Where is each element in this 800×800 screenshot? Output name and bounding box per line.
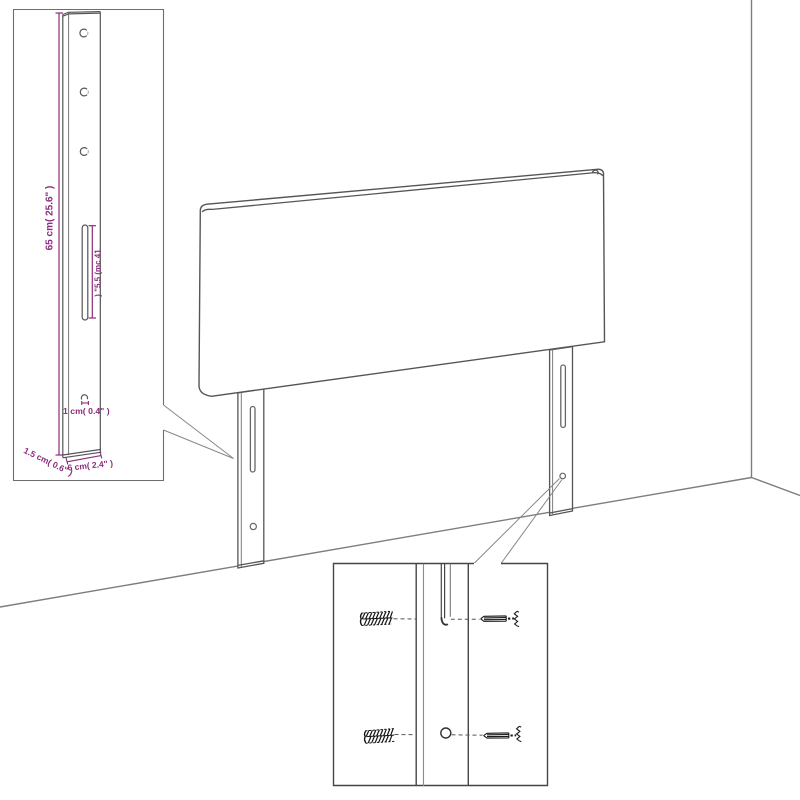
svg-text:65 cm( 25.6" ): 65 cm( 25.6" ) [45,186,56,251]
svg-text:) "5.5 (mc 41: ) "5.5 (mc 41 [94,249,103,297]
svg-text:1 cm( 0.4" ): 1 cm( 0.4" ) [63,406,110,416]
